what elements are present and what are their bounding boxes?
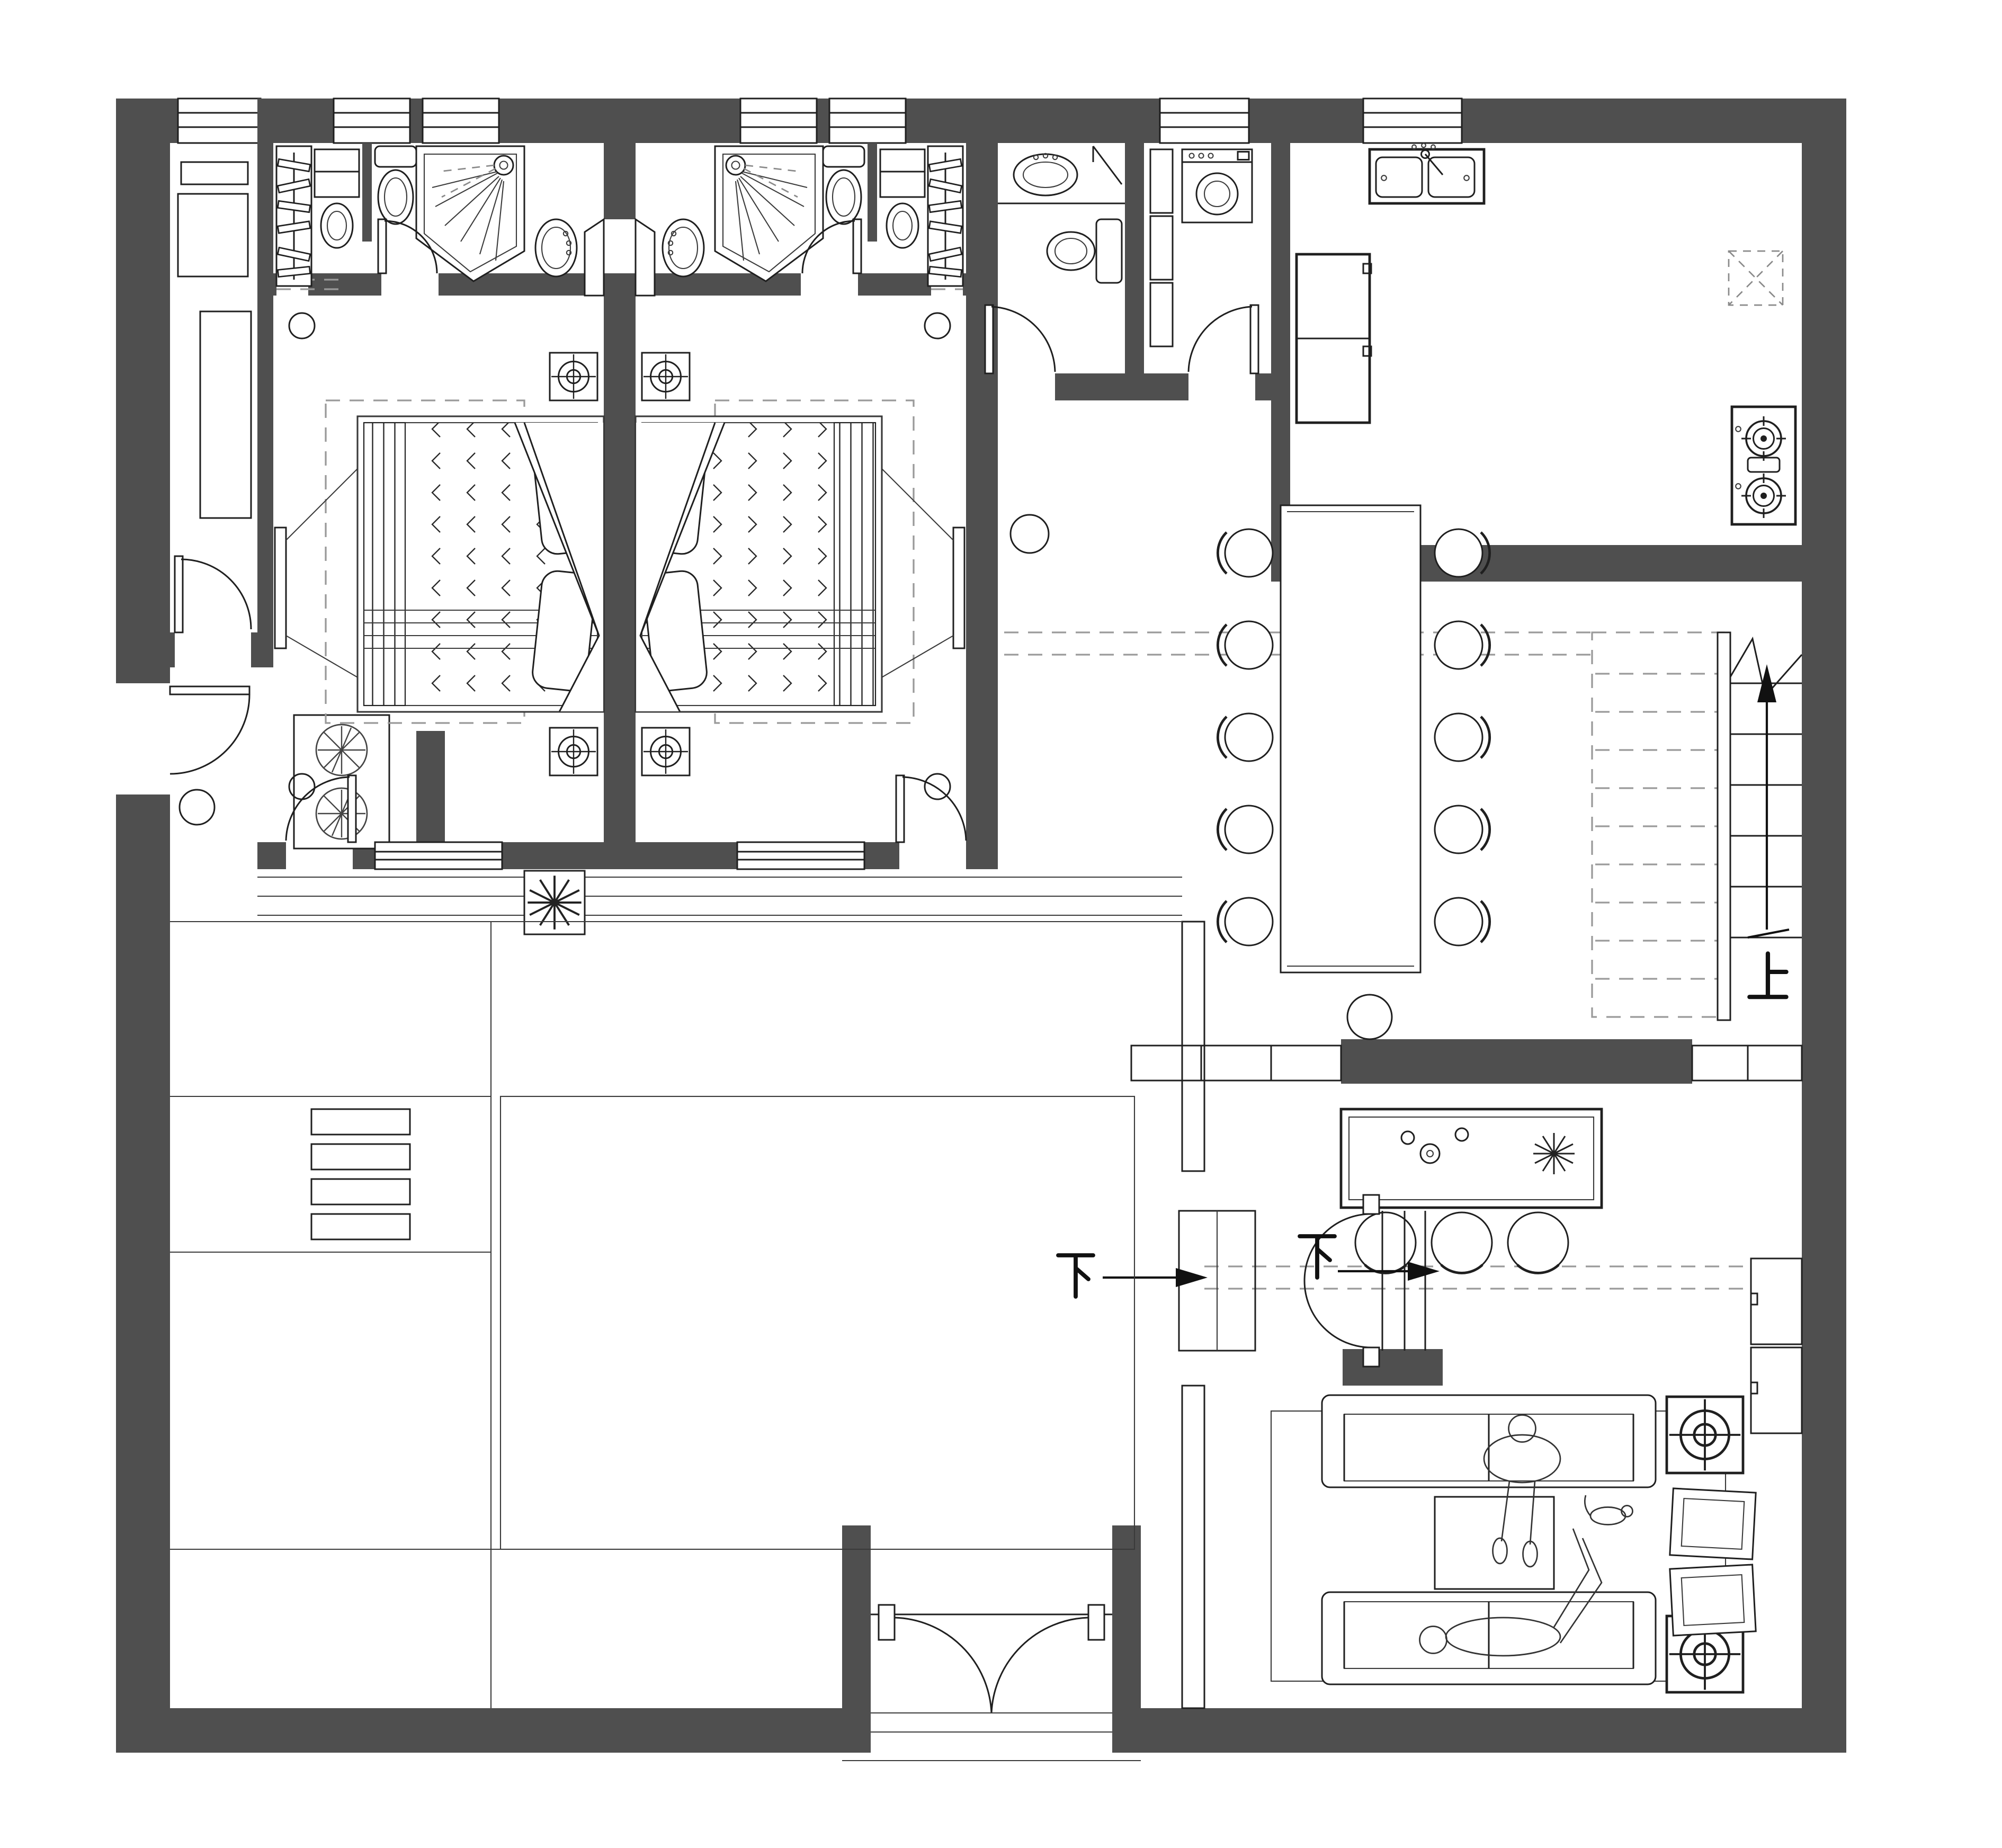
washing-machine [1182, 149, 1252, 222]
door-frame [1088, 1605, 1104, 1640]
planter [294, 715, 389, 849]
bar-stool [1432, 1212, 1492, 1273]
entry-door-swing [895, 1618, 991, 1713]
floor-plan-svg [0, 0, 2002, 1848]
bathroom-right [636, 146, 925, 296]
veranda-plant-box [524, 871, 585, 934]
window [829, 99, 906, 143]
double-bed [636, 416, 882, 712]
plant-icon [316, 788, 367, 839]
pendant-light [1011, 515, 1049, 553]
laundry [1150, 149, 1258, 373]
pendant-light [1347, 995, 1392, 1039]
service-hatch [585, 219, 604, 296]
paved-area [501, 1096, 1134, 1549]
bottom-wall-east [1112, 1708, 1846, 1753]
left-wall-door [170, 686, 249, 774]
left-wall-lower [116, 794, 170, 1708]
double-bed [358, 416, 604, 712]
nightstand-lamp [550, 353, 597, 400]
stairs-up-arrow [1748, 664, 1789, 938]
bar-stool [1355, 1212, 1416, 1273]
living-room [1271, 1258, 1802, 1692]
right-wall [1802, 99, 1846, 1753]
extractor-hood [1729, 251, 1783, 305]
study-cabinet [200, 311, 251, 518]
cabinet [1150, 216, 1173, 280]
walk-in-closet-right [928, 146, 963, 286]
nightstand-lamp [642, 728, 690, 775]
bottom-wall-west [116, 1708, 871, 1753]
ceiling-light [925, 313, 950, 338]
stairs-down-arrow-west [1058, 1255, 1208, 1297]
window [334, 99, 410, 143]
door-swing [1304, 1281, 1371, 1347]
left-wall-upper [116, 99, 170, 683]
concealed-cistern-toilet [880, 149, 925, 248]
floor-plan-page: 上 下 [0, 0, 2002, 1848]
ceiling-light [180, 790, 215, 825]
nightstand-lamp [550, 728, 597, 775]
window [740, 99, 817, 143]
double-sink [1370, 144, 1484, 203]
study-shelf [181, 162, 248, 184]
door-frame [1363, 1347, 1379, 1367]
bathroom-left [315, 146, 604, 296]
upper-flight-outline [1592, 632, 1724, 1017]
bench-planters [311, 1109, 410, 1239]
bar-stool [1508, 1212, 1568, 1273]
bedroom-right [636, 313, 966, 869]
plant-icon [316, 725, 367, 775]
corner-shower [715, 146, 823, 281]
island-bar [1341, 995, 1602, 1273]
refrigerator [1297, 254, 1371, 423]
sofa-north [1322, 1395, 1656, 1487]
wall-cabinets [1751, 1258, 1802, 1433]
corner-shower [416, 146, 524, 281]
stairs-down-label-glyph [1058, 1255, 1093, 1297]
gas-hob [1732, 407, 1795, 524]
study-desk [178, 194, 248, 276]
staircase-up [1592, 632, 1802, 1020]
washbasin [663, 219, 704, 276]
accent-chair [1670, 1488, 1756, 1559]
entrance [842, 1605, 1141, 1761]
handrail [1718, 632, 1730, 1020]
staircase-down [1058, 1195, 1440, 1367]
courtyard [170, 871, 1182, 1708]
bedroom-window [737, 842, 864, 869]
walk-in-closet-left [276, 146, 311, 286]
concealed-cistern-toilet [315, 149, 359, 248]
sofa-south [1322, 1592, 1656, 1684]
tank-toilet [375, 146, 416, 224]
corner-shelf [1093, 146, 1122, 184]
laundry-door [1188, 305, 1258, 373]
corridor-glazing [1182, 922, 1204, 1708]
nightstand-lamp [642, 353, 690, 400]
side-table-lamp [1667, 1397, 1743, 1473]
bedroom-window [375, 842, 502, 869]
washbasin [1014, 154, 1077, 195]
room-study [175, 162, 251, 632]
stairs-up-label-glyph [1749, 953, 1786, 997]
tank-toilet [823, 146, 864, 224]
dining [1218, 505, 1489, 972]
entry-door-swing [991, 1618, 1088, 1713]
cabinet [1150, 149, 1173, 213]
window [1160, 99, 1249, 143]
dining-table [1281, 505, 1420, 972]
window [423, 99, 499, 143]
accent-chair [1670, 1565, 1756, 1636]
service-hatch [636, 219, 655, 296]
veranda-steps [257, 877, 1182, 915]
terrace-door [896, 775, 966, 842]
hall-bathroom [985, 146, 1125, 373]
toilet [1047, 219, 1122, 283]
cabinet [1150, 283, 1173, 346]
door-frame [1363, 1195, 1379, 1214]
ceiling-light [289, 313, 315, 338]
window [178, 99, 261, 143]
door-frame [879, 1605, 895, 1640]
washbasin [535, 219, 577, 276]
pet [1585, 1495, 1632, 1525]
window [1363, 99, 1462, 143]
study-door [175, 556, 251, 632]
